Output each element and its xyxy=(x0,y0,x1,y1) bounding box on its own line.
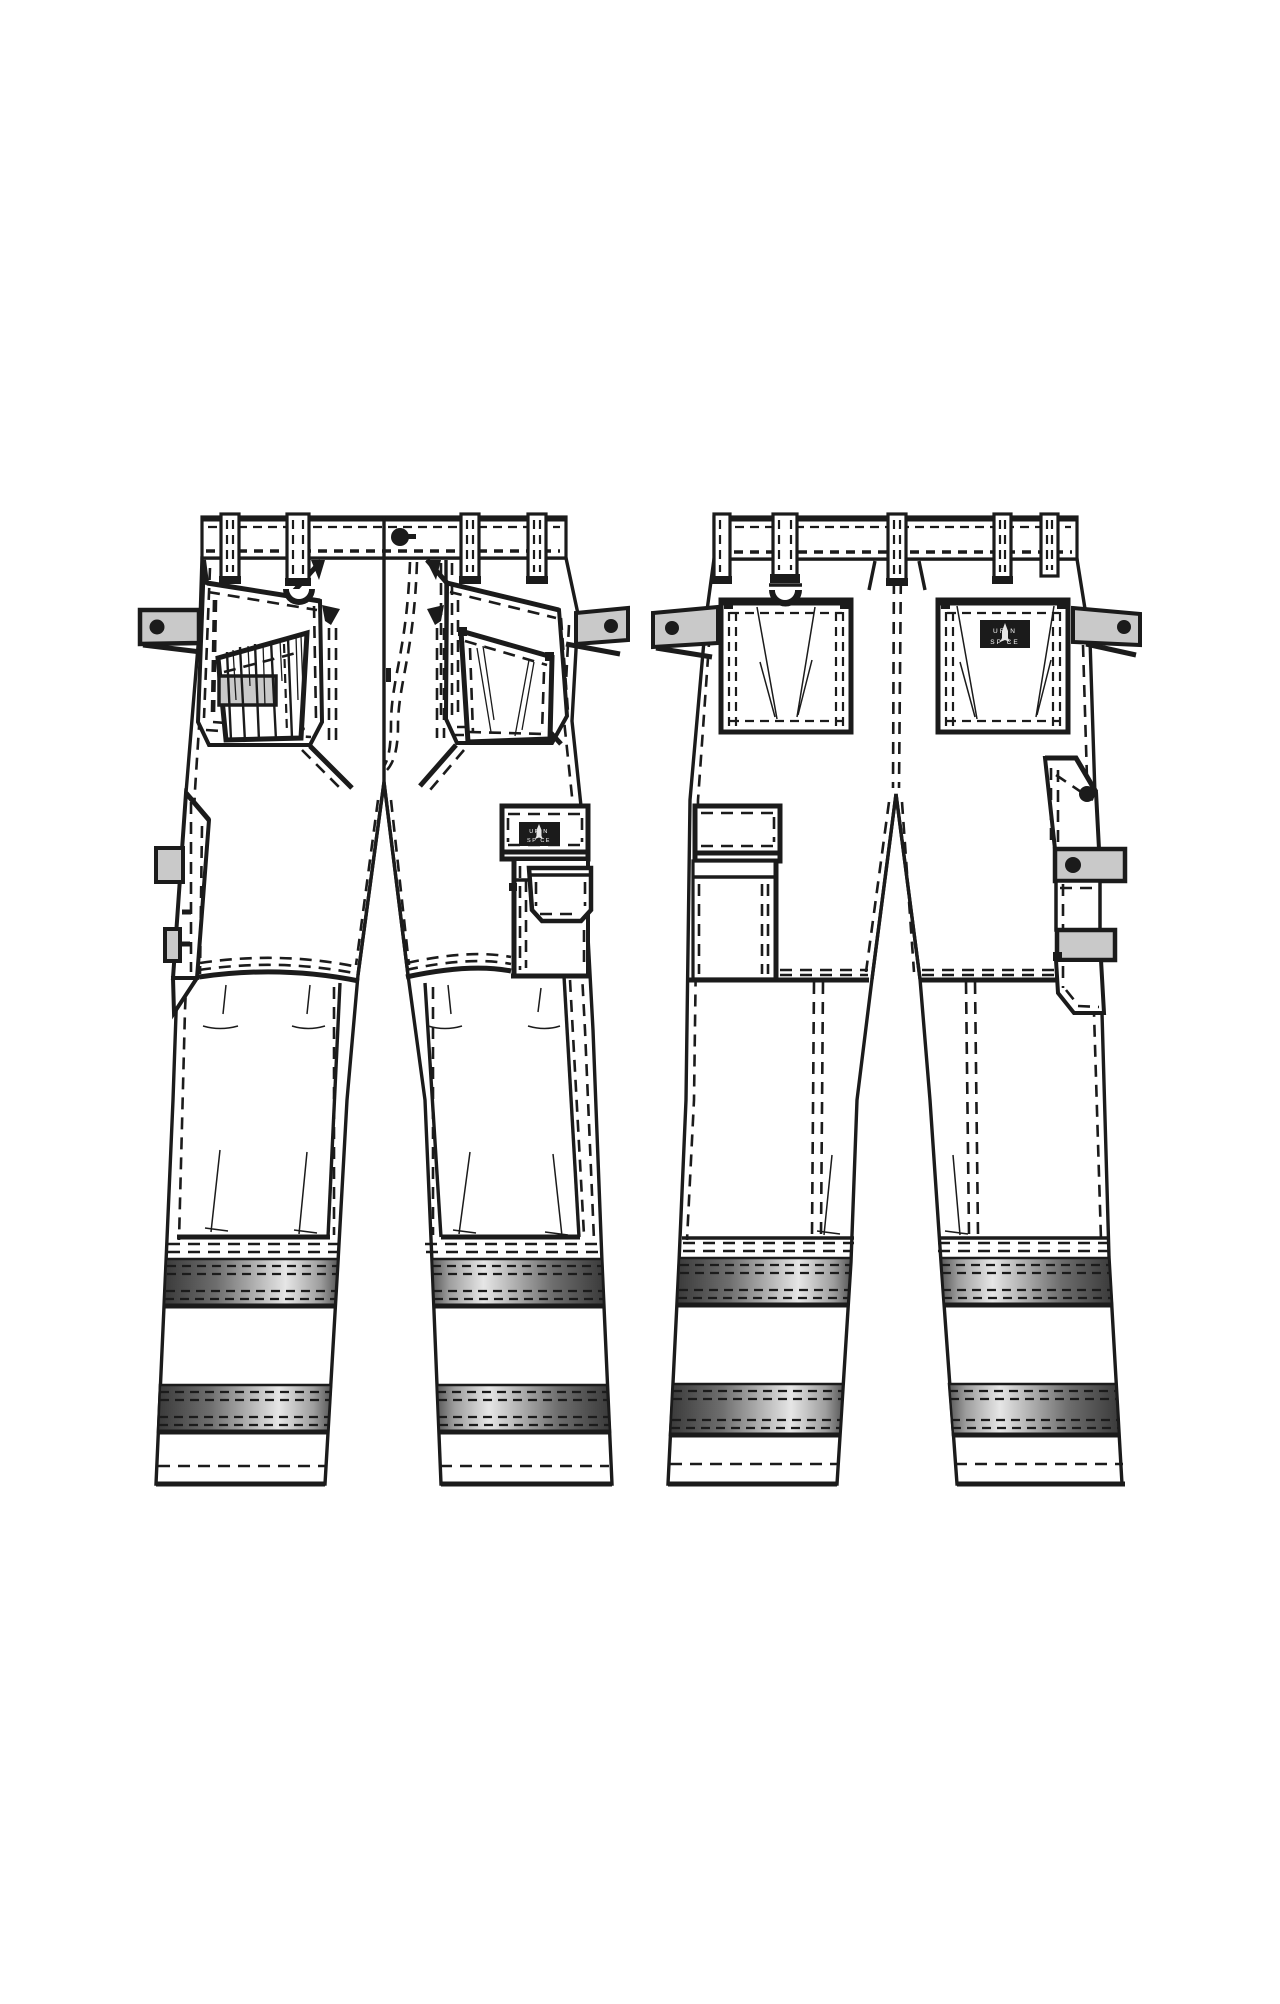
svg-text:SP CE: SP CE xyxy=(527,838,551,844)
svg-text:SP CE: SP CE xyxy=(990,639,1019,646)
